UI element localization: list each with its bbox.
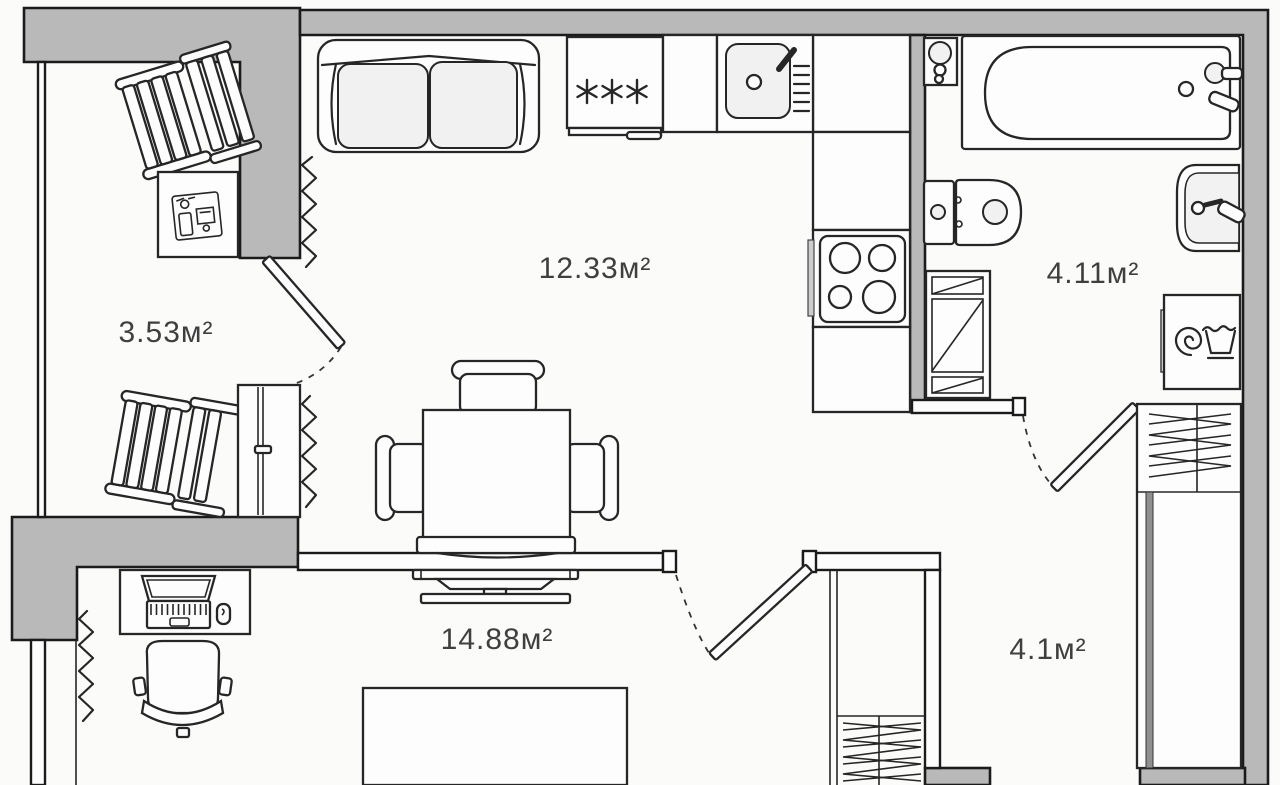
deck-chair-lower-icon	[104, 385, 243, 517]
hallway-wardrobe-icon	[1137, 404, 1241, 768]
fridge-icon	[567, 37, 663, 139]
room-label-balcony: 3.53м²	[118, 316, 213, 350]
bedroom-partition-wall	[298, 553, 663, 570]
bath-shelf-icon	[926, 271, 990, 398]
sofa-icon	[318, 40, 539, 152]
toilet-icon	[924, 180, 1021, 245]
desk-icon	[120, 570, 250, 634]
bathroom-door-jamb	[1013, 398, 1025, 415]
balcony-door-leaf	[262, 256, 345, 349]
balcony-door	[262, 256, 345, 389]
bedroom-radiator-icon	[302, 396, 316, 507]
room-label-hallway: 4.1м²	[1009, 633, 1086, 667]
kitchen-radiator-icon	[302, 157, 316, 267]
tv-stand-icon	[413, 570, 578, 603]
room-label-bedroom: 14.88м²	[441, 623, 554, 657]
hallway-closet-wall	[925, 570, 940, 768]
hallway-closet-icon	[830, 570, 925, 785]
dining-chair-left-icon	[376, 436, 428, 520]
bed-icon	[363, 688, 627, 785]
bedroom-wardrobe-icon	[238, 385, 300, 517]
hallway-bottom-wall-right	[1140, 768, 1245, 785]
floor-plan-canvas	[0, 0, 1280, 785]
bedroom-window	[31, 640, 45, 785]
balcony-table-icon	[158, 172, 238, 257]
bedroom-partition-cap	[663, 551, 676, 572]
bathtub-icon	[962, 36, 1242, 149]
dining-chair-top-icon	[452, 361, 544, 414]
stove-icon	[808, 236, 905, 322]
washing-machine-icon	[1161, 295, 1240, 389]
dining-chair-right-icon	[566, 436, 618, 520]
room-label-kitchen: 12.33м²	[539, 252, 652, 286]
mouse-icon	[217, 604, 230, 624]
bedroom-door	[676, 564, 812, 660]
freezer-stars-icon	[578, 80, 647, 103]
floor-plan: 3.53м² 12.33м² 4.11м² 14.88м² 4.1м²	[0, 0, 1280, 785]
office-chair-icon	[133, 641, 232, 737]
bathroom-bottom-wall	[912, 400, 1015, 413]
bathroom-door	[1023, 402, 1140, 491]
room-label-bathroom: 4.11м²	[1047, 257, 1140, 291]
balcony-window	[38, 62, 45, 517]
water-heater-icon	[924, 38, 957, 85]
bedroom-door-leaf	[709, 564, 812, 660]
room-radiator-icon	[79, 611, 93, 721]
bedroom-door-side-wall	[803, 553, 940, 570]
bathroom-door-leaf	[1050, 402, 1139, 491]
bathroom-door-swing-arc	[1023, 416, 1051, 484]
kitchen-sink-icon	[717, 35, 813, 132]
bedroom-door-swing-arc	[676, 575, 709, 653]
laptop-icon	[142, 576, 215, 628]
balcony-door-swing-arc	[272, 347, 341, 389]
kitchen-bath-wall	[910, 35, 925, 412]
hallway-bottom-wall-left	[925, 768, 990, 785]
washbasin-icon	[1177, 165, 1246, 251]
dining-table-icon	[376, 361, 618, 558]
hanging-clothes-icon	[843, 723, 921, 781]
